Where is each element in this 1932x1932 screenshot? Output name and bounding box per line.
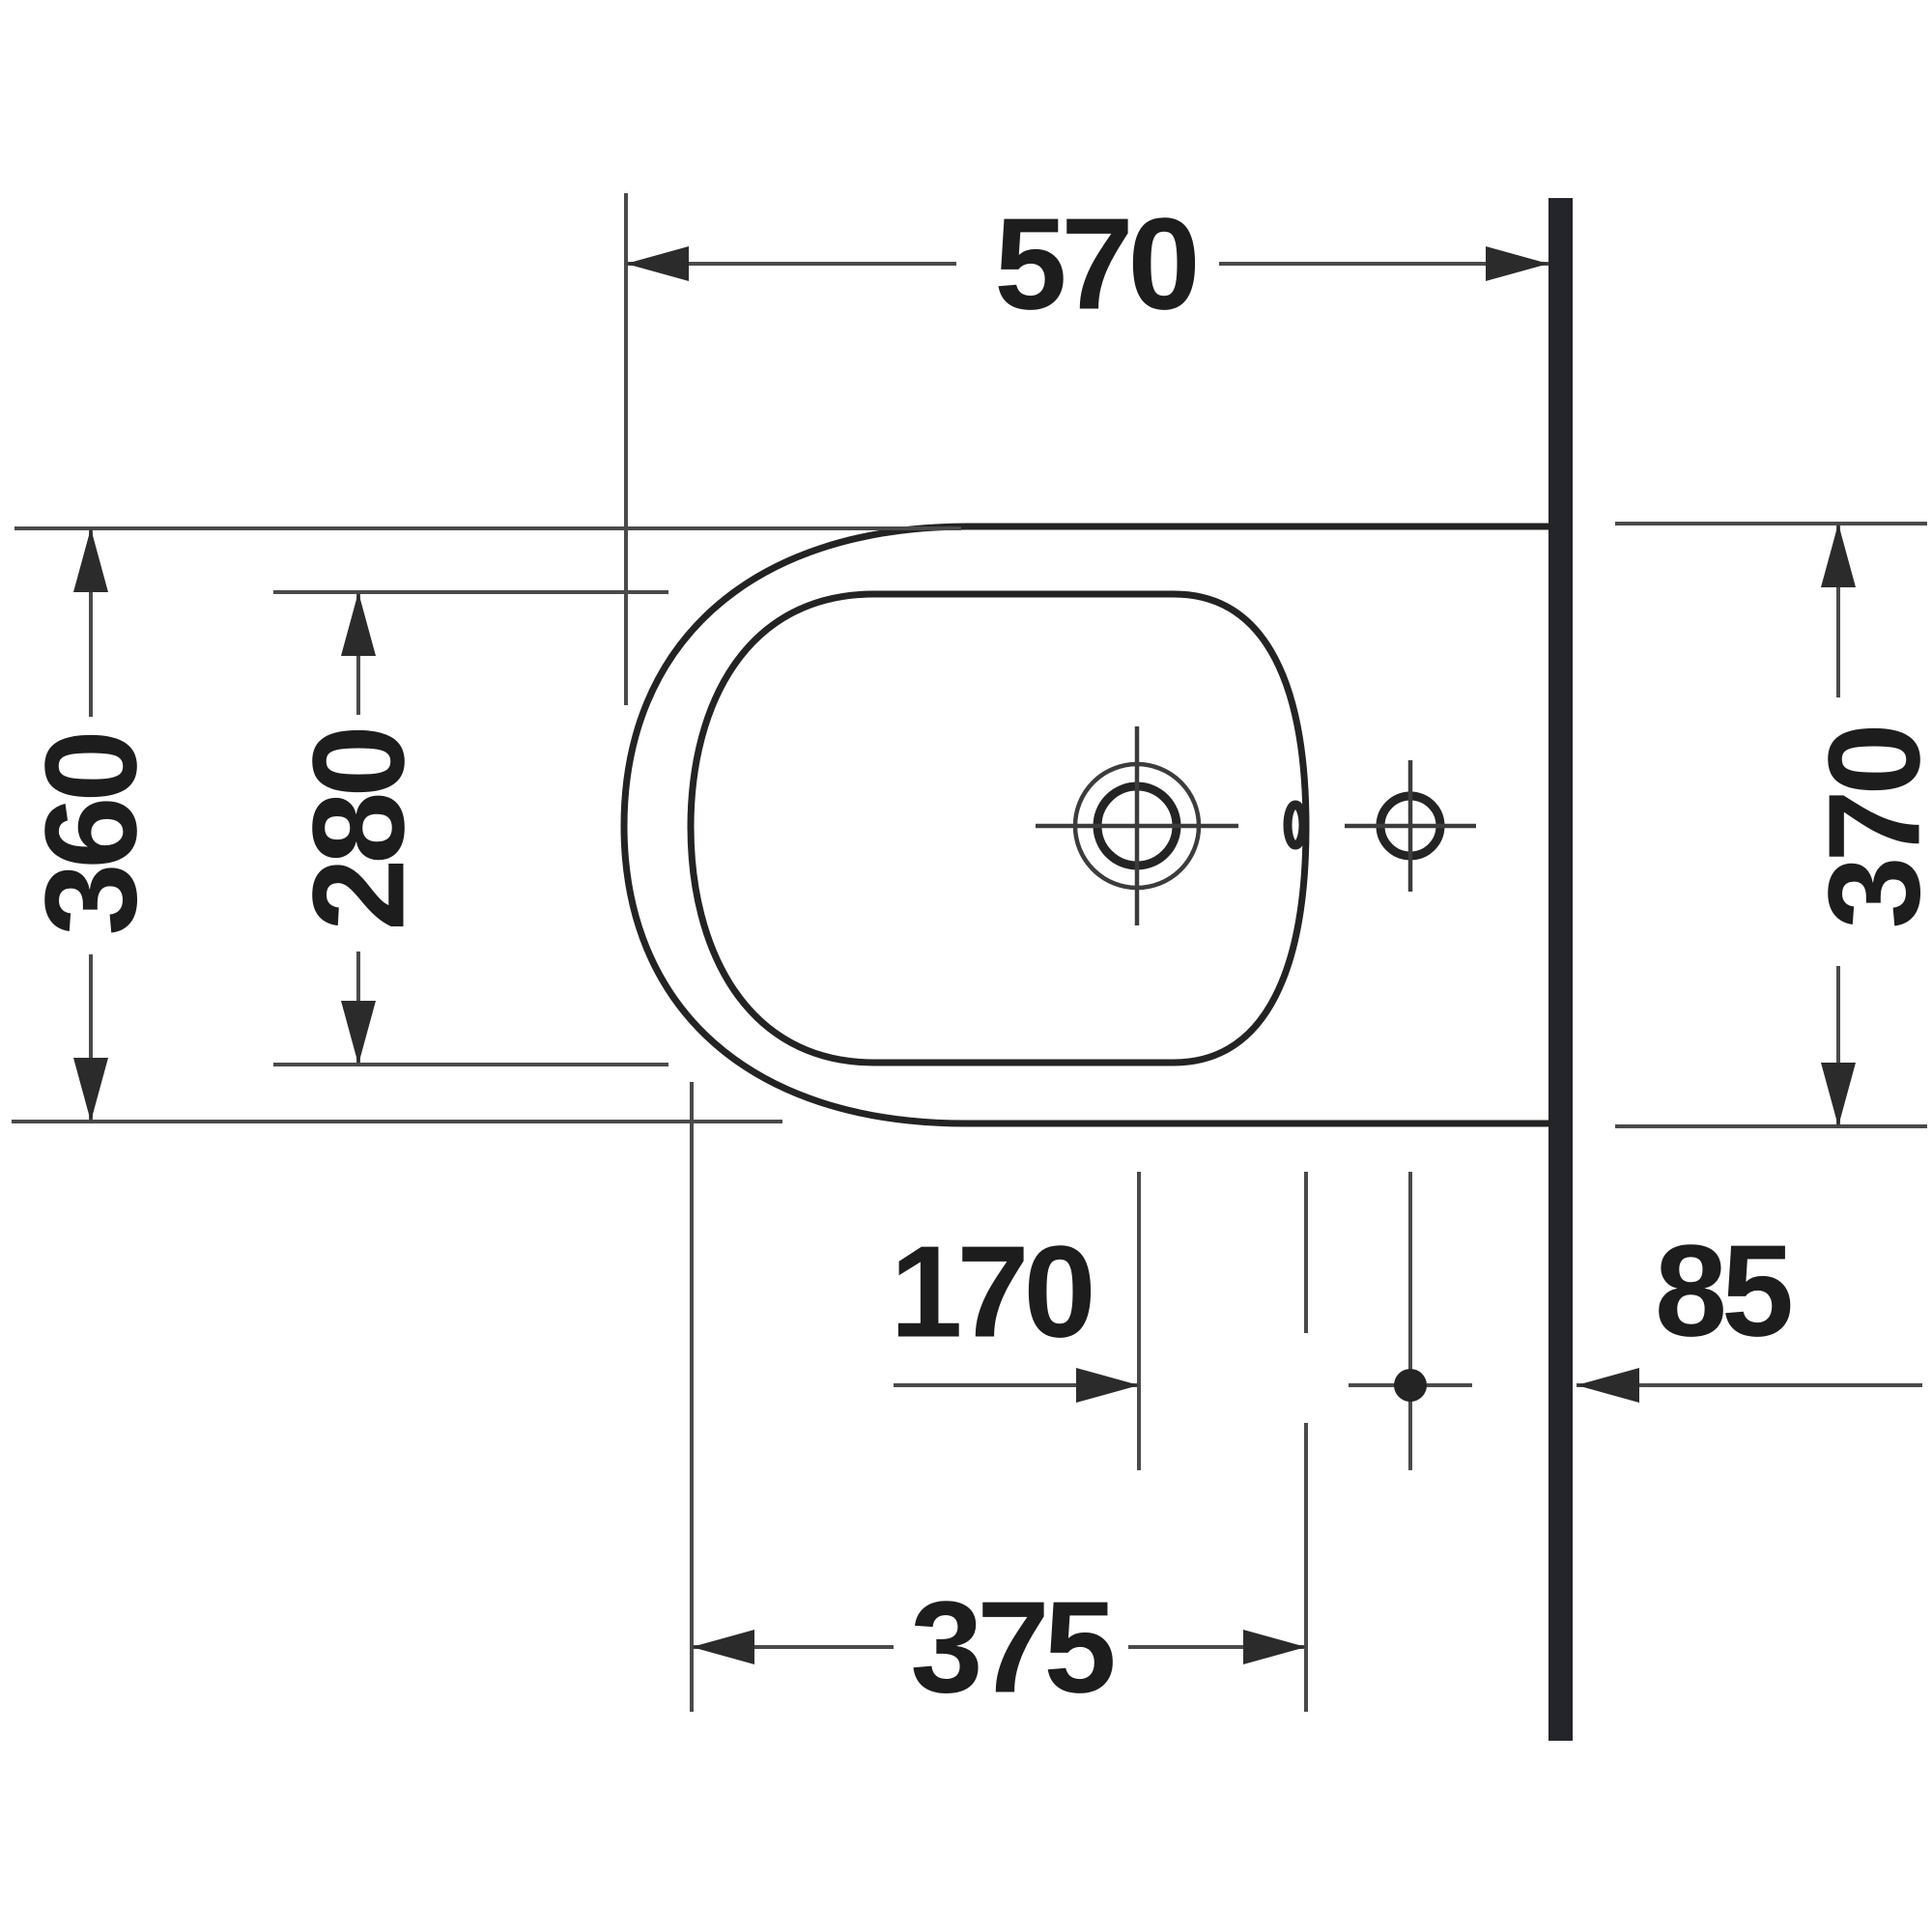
- dim-bowl-length: 375: [692, 1082, 1306, 1720]
- arrow-right-icon: [1243, 1630, 1306, 1664]
- bidet-inner-bowl-outline: [691, 594, 1306, 1063]
- tap-hole-symbol: [1036, 726, 1238, 925]
- dim-tap-to-hole: 170: [890, 1172, 1139, 1470]
- back-width-label: 370: [1802, 727, 1932, 928]
- dim-back-width: 370: [1615, 524, 1932, 1126]
- arrow-down-icon: [341, 1001, 376, 1065]
- overall-depth-label: 570: [994, 191, 1195, 337]
- dim-front-width: 360: [12, 528, 961, 1122]
- bowl-length-label: 375: [910, 1575, 1113, 1720]
- arrow-down-icon: [73, 1058, 108, 1122]
- bowl-width-label: 280: [286, 729, 432, 930]
- dim-bowl-width: 280: [273, 592, 668, 1065]
- arrow-right-icon: [1486, 246, 1548, 281]
- dot-marker-icon: [1394, 1369, 1427, 1402]
- arrow-right-icon: [1076, 1368, 1139, 1403]
- wall-line: [1548, 198, 1573, 1741]
- fixing-hole-symbol: [1345, 760, 1476, 892]
- front-width-label: 360: [18, 734, 164, 935]
- dim-hole-to-wall: 85: [1577, 1218, 1922, 1404]
- hole-to-wall-label: 85: [1655, 1218, 1791, 1364]
- tap-to-hole-label: 170: [890, 1219, 1091, 1365]
- overflow-slot: [1288, 805, 1303, 845]
- arrow-left-icon: [1577, 1368, 1639, 1403]
- arrow-left-icon: [626, 246, 689, 281]
- arrow-up-icon: [341, 592, 376, 656]
- fixing-hole-projection-marker: [1349, 1172, 1472, 1470]
- arrow-down-icon: [1821, 1063, 1856, 1126]
- arrow-up-icon: [1821, 524, 1856, 587]
- arrow-up-icon: [73, 528, 108, 592]
- technical-drawing-canvas: 570 360 280 370 170: [0, 0, 1932, 1932]
- bidet-top-view-drawing: 570 360 280 370 170: [0, 0, 1932, 1932]
- arrow-left-icon: [692, 1630, 754, 1664]
